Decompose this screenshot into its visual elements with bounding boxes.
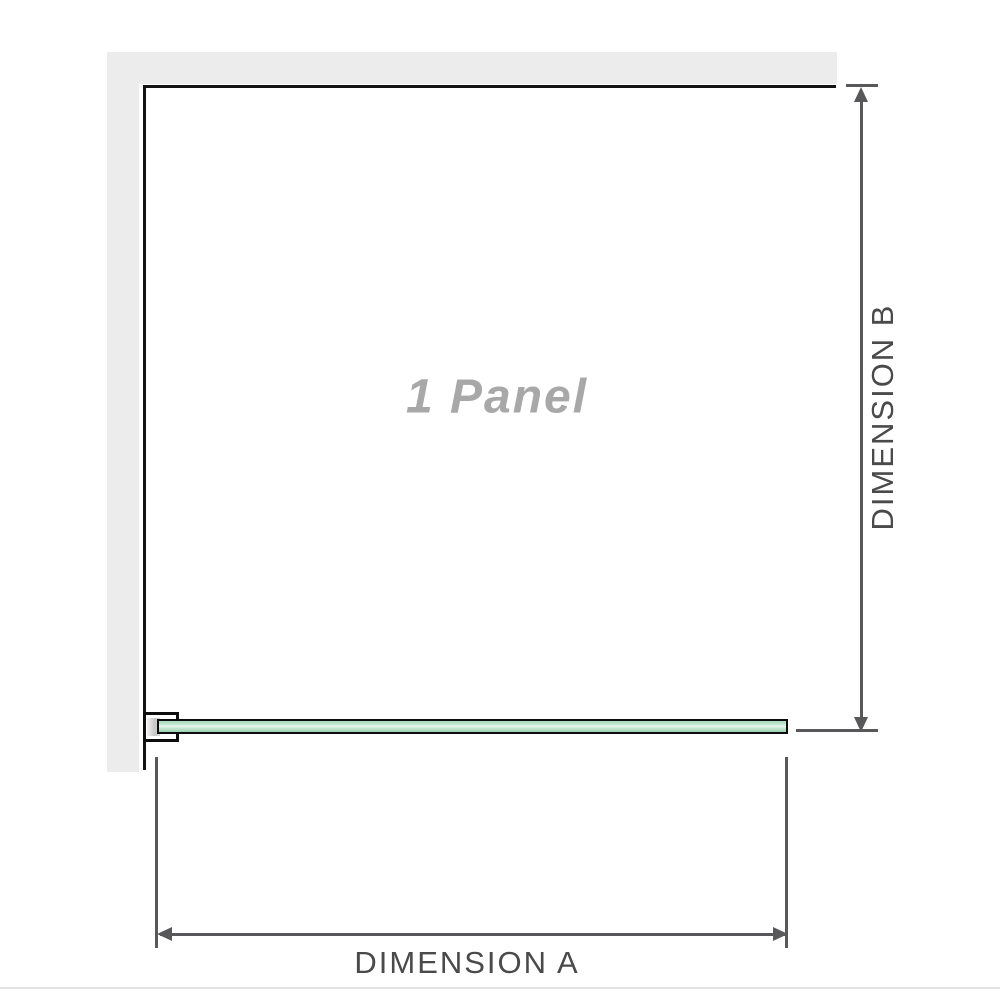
shower-screen-diagram: 1 Panel DIMENSION B DIMENSION A <box>0 0 1000 1000</box>
dimension-a-right-tick <box>785 757 788 948</box>
wall-top-bar <box>107 52 837 84</box>
enclosure-left-edge <box>143 85 146 770</box>
panel-count-label: 1 Panel <box>406 370 588 425</box>
arrow-up-icon <box>854 87 868 102</box>
wall-left-bar <box>107 52 139 772</box>
dimension-b-label: DIMENSION B <box>865 304 901 531</box>
glass-panel <box>157 719 788 734</box>
dimension-b-line <box>860 92 863 722</box>
dimension-a-label: DIMENSION A <box>354 945 579 981</box>
arrow-down-icon <box>854 717 868 732</box>
enclosure-top-edge <box>143 85 836 88</box>
arrow-left-icon <box>157 927 172 941</box>
page-bottom-rule <box>0 987 1000 989</box>
arrow-right-icon <box>773 927 788 941</box>
dimension-a-line <box>160 933 785 936</box>
dimension-a-left-tick <box>155 757 158 948</box>
